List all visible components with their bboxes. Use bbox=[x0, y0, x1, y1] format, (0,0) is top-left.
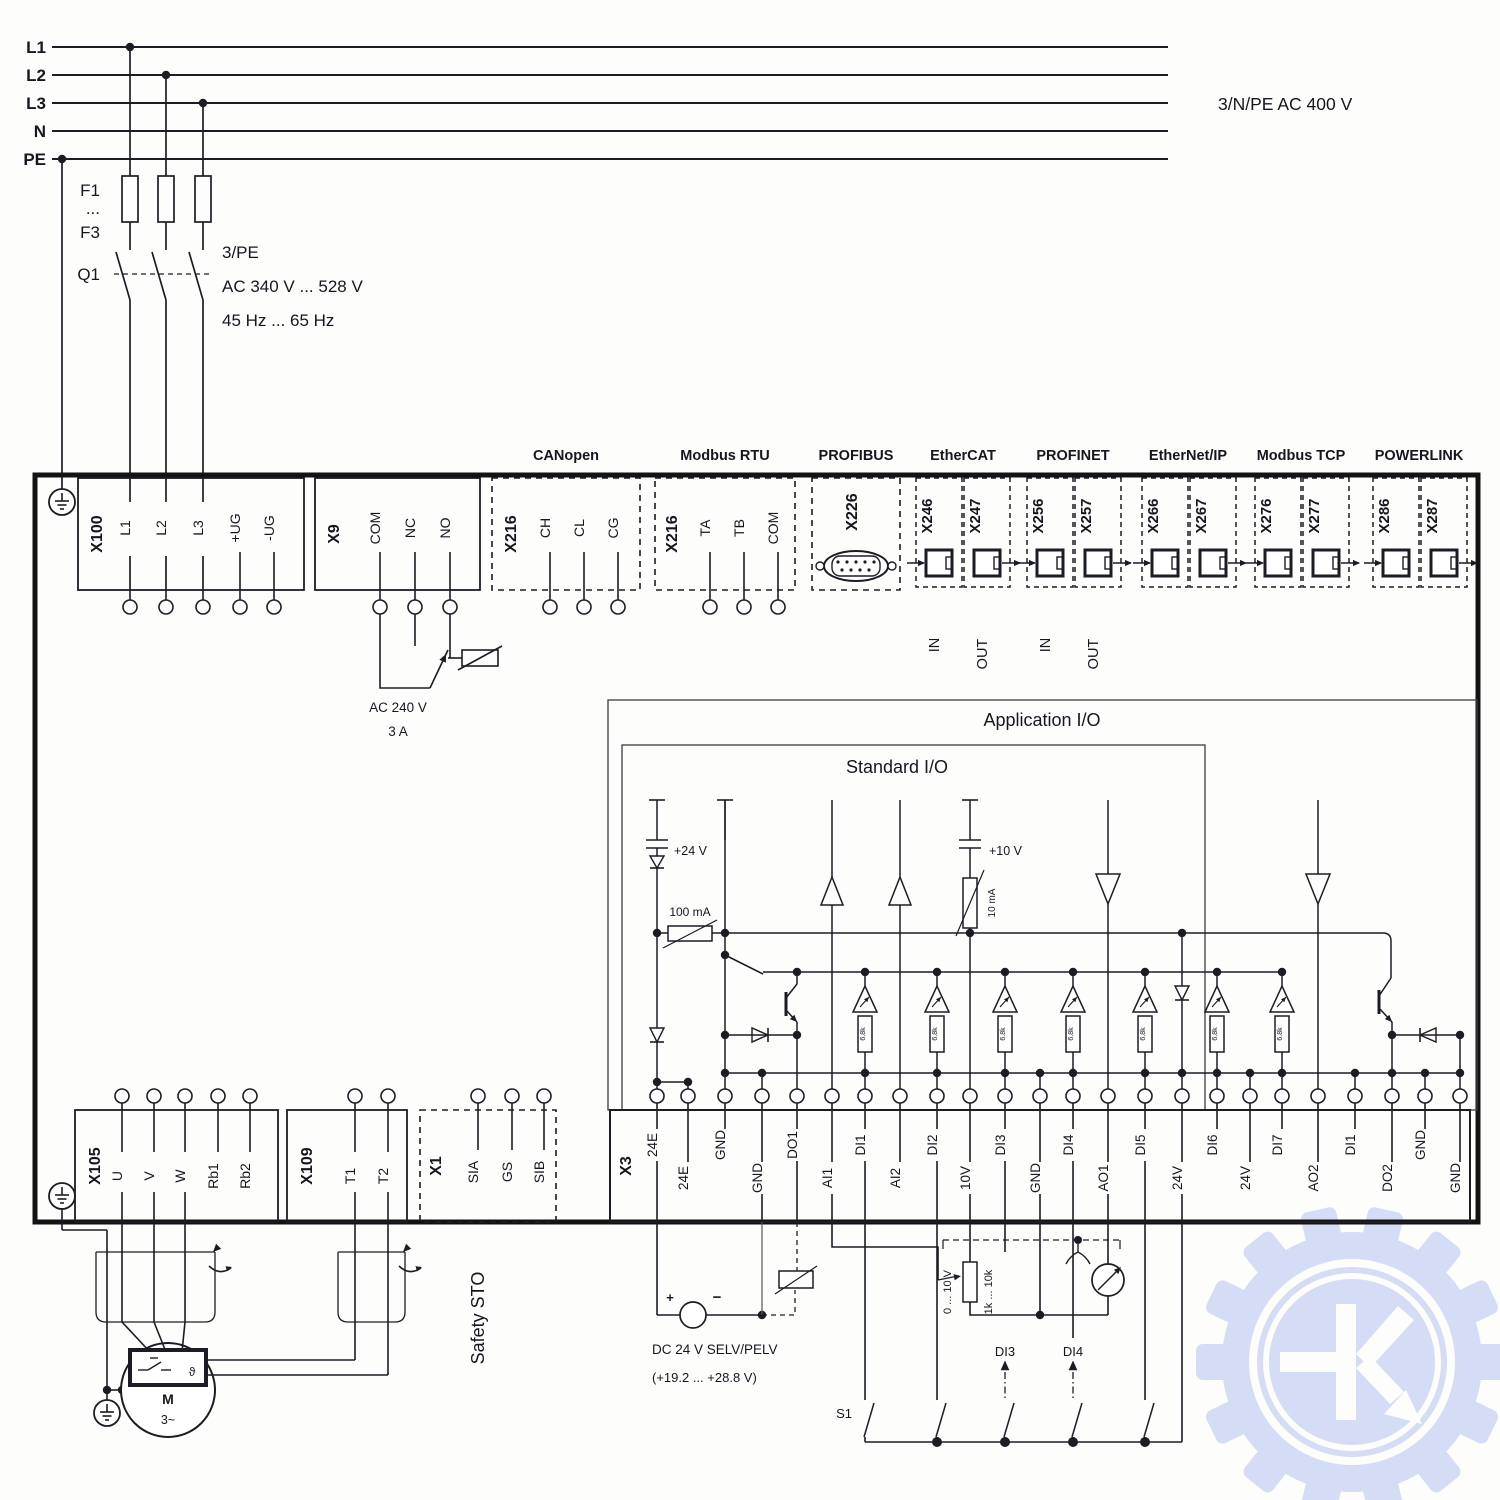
di-resistor-value-2: 6.8k bbox=[1000, 1027, 1007, 1041]
port-block-x247: X247OUT bbox=[964, 478, 1021, 669]
block-id-x3: X3 bbox=[618, 1156, 635, 1176]
mains-line-label-L2: L2 bbox=[26, 66, 46, 85]
motor-symbol: M bbox=[162, 1391, 174, 1407]
fieldbus-header-modbus-tcp: Modbus TCP bbox=[1257, 448, 1346, 464]
port-dir-x256: IN bbox=[1038, 638, 1054, 653]
x1-terminal-0: SIA bbox=[465, 1160, 481, 1183]
terminal-block-x9: X9COMNCNO bbox=[315, 478, 480, 614]
x100-terminal-1: L2 bbox=[153, 520, 169, 536]
port-block-x266: X266 bbox=[1133, 478, 1188, 587]
terminal-block-x216-modbus: X216TATBCOM bbox=[655, 478, 795, 614]
x3-terminal-9-10v: 10V bbox=[958, 1166, 973, 1190]
fieldbus-header-profinet: PROFINET bbox=[1036, 448, 1109, 464]
x3-terminal-7-ai2: AI2 bbox=[888, 1168, 903, 1188]
supply-rating-label: 3/N/PE AC 400 V bbox=[1218, 94, 1353, 114]
x3-terminal-12-di4: DI4 bbox=[1061, 1134, 1076, 1156]
x3-terminal-18-di7: DI7 bbox=[1270, 1134, 1285, 1155]
relay-output-circuit: AC 240 V3 A bbox=[369, 614, 502, 739]
wiring-diagram-page: L1L2L3NPE3/N/PE AC 400 VF1...F3Q13/PEAC … bbox=[0, 0, 1500, 1500]
fieldbus-header-profibus: PROFIBUS bbox=[819, 448, 894, 464]
motor-assembly: M3~ϑ bbox=[62, 1208, 423, 1437]
modbus-terminal-0: TA bbox=[697, 519, 713, 537]
fuse-label-f1: F1 bbox=[80, 181, 100, 200]
x3-terminal-11-gnd: GND bbox=[1028, 1163, 1043, 1193]
x3-terminal-1-24e: 24E bbox=[676, 1166, 691, 1190]
rj45-connector-icon bbox=[1383, 550, 1409, 576]
block-id-x276: X276 bbox=[1258, 498, 1275, 533]
x3-terminal-0-24e: 24E bbox=[645, 1133, 660, 1157]
block-id-x216-can: X216 bbox=[503, 515, 520, 552]
psu-minus-mark: − bbox=[713, 1289, 722, 1306]
block-id-x277: X277 bbox=[1306, 498, 1323, 533]
block-id-x109: X109 bbox=[299, 1147, 316, 1184]
breaker-note-1: AC 340 V ... 528 V bbox=[222, 277, 363, 296]
terminal-block-x1: X1SIAGSSIBSafety STO bbox=[420, 1089, 556, 1364]
label-100ma: 100 mA bbox=[669, 905, 710, 919]
breaker-label-q1: Q1 bbox=[77, 265, 100, 284]
psu-plus-mark: + bbox=[666, 1290, 674, 1305]
block-id-x267: X267 bbox=[1193, 498, 1210, 533]
fieldbus-header-ethercat: EtherCAT bbox=[930, 448, 996, 464]
psu-title: DC 24 V SELV/PELV bbox=[652, 1342, 778, 1357]
external-analog-circuit: 0 ... 10 V1k ... 10k bbox=[832, 1222, 1124, 1319]
di-resistor-value-3: 6.8k bbox=[1068, 1027, 1075, 1041]
block-id-x257: X257 bbox=[1078, 498, 1095, 533]
fuse-label-dots: ... bbox=[86, 199, 100, 218]
port-dir-x247: OUT bbox=[975, 639, 991, 670]
mains-line-label-PE: PE bbox=[23, 150, 46, 169]
x3-terminal-5-ai1: AI1 bbox=[820, 1168, 835, 1188]
can-terminal-0: CH bbox=[537, 518, 553, 538]
port-dir-x246: IN bbox=[927, 638, 943, 653]
block-id-x246: X246 bbox=[919, 498, 936, 533]
port-block-x276: X276 bbox=[1246, 478, 1301, 587]
x3-terminal-10-di3: DI3 bbox=[993, 1134, 1008, 1155]
breaker-note-2: 45 Hz ... 65 Hz bbox=[222, 311, 334, 330]
mains-line-label-N: N bbox=[34, 122, 46, 141]
x109-terminal-0: T1 bbox=[342, 1168, 358, 1185]
block-id-x100: X100 bbox=[89, 515, 106, 552]
port-block-x257: X257OUT bbox=[1075, 478, 1132, 669]
rj45-connector-icon bbox=[1265, 550, 1291, 576]
terminal-block-x216-canopen: X216CHCLCG bbox=[492, 478, 640, 614]
x3-terminal-19-ao2: AO2 bbox=[1306, 1164, 1321, 1191]
x100-terminal-2: L3 bbox=[190, 520, 206, 536]
x3-terminal-22-gnd: GND bbox=[1413, 1130, 1428, 1160]
x9-terminal-0: COM bbox=[367, 512, 383, 545]
block-id-x266: X266 bbox=[1145, 498, 1162, 533]
x105-terminal-2: W bbox=[172, 1169, 188, 1183]
port-block-x277: X277 bbox=[1303, 478, 1360, 587]
terminal-block-x105: X105UVWRb1Rb2 bbox=[75, 1089, 278, 1222]
x3-terminal-20-di1: DI1 bbox=[1343, 1134, 1358, 1155]
rj45-connector-icon bbox=[1431, 550, 1457, 576]
modbus-terminal-2: COM bbox=[765, 512, 781, 545]
x3-terminal-13-ao1: AO1 bbox=[1096, 1164, 1111, 1191]
di-resistor-value-1: 6.8k bbox=[932, 1027, 939, 1041]
x3-terminal-6-di1: DI1 bbox=[853, 1134, 868, 1155]
x3-terminal-15-24v: 24V bbox=[1170, 1166, 1185, 1190]
port-block-x246: X246IN bbox=[907, 478, 962, 652]
x1-terminal-2: SIB bbox=[531, 1161, 547, 1184]
modbus-terminal-1: TB bbox=[731, 519, 747, 537]
rj45-connector-icon bbox=[1313, 550, 1339, 576]
port-dir-x257: OUT bbox=[1086, 639, 1102, 670]
label-10ma: 10 mA bbox=[987, 888, 998, 917]
ref-label-di3: DI3 bbox=[995, 1344, 1015, 1359]
switch-label-s1: S1 bbox=[836, 1406, 852, 1421]
x3-terminal-3-gnd: GND bbox=[750, 1163, 765, 1193]
fieldbus-header-row: CANopenModbus RTUPROFIBUSEtherCATPROFINE… bbox=[533, 448, 1464, 464]
breaker-note-0: 3/PE bbox=[222, 243, 259, 262]
fieldbus-header-modbus-rtu: Modbus RTU bbox=[680, 448, 769, 464]
x105-terminal-0: U bbox=[109, 1171, 125, 1181]
ref-label-di4: DI4 bbox=[1063, 1344, 1083, 1359]
fuse-label-f3: F3 bbox=[80, 223, 100, 242]
x3-terminal-8-di2: DI2 bbox=[925, 1134, 940, 1155]
fieldbus-header-powerlink: POWERLINK bbox=[1375, 448, 1464, 464]
terminal-block-x226-profibus: X226 bbox=[812, 478, 900, 590]
x3-terminal-4-do1: DO1 bbox=[785, 1131, 800, 1159]
terminal-block-x3: X324E24EGNDGNDDO1AI1DI1AI2DI210VDI3GNDDI… bbox=[610, 1089, 1470, 1222]
relay-rating-voltage: AC 240 V bbox=[369, 700, 427, 715]
rj45-connector-icon bbox=[1200, 550, 1226, 576]
x100-terminal-4: -UG bbox=[261, 515, 277, 541]
block-id-x9: X9 bbox=[326, 524, 343, 544]
motor-phases: 3~ bbox=[161, 1413, 175, 1427]
mains-line-label-L3: L3 bbox=[26, 94, 46, 113]
di-resistor-value-4: 6.8k bbox=[1140, 1027, 1147, 1041]
x9-terminal-1: NC bbox=[402, 518, 418, 538]
pot-resistance-label: 1k ... 10k bbox=[983, 1269, 995, 1314]
can-terminal-1: CL bbox=[571, 519, 587, 537]
io-frames: Application I/OStandard I/O bbox=[608, 700, 1477, 1110]
dsub9-connector-icon bbox=[816, 551, 896, 581]
block-id-x216-mb: X216 bbox=[664, 515, 681, 552]
safety-sto-label: Safety STO bbox=[468, 1272, 488, 1365]
rj45-connector-icon bbox=[1037, 550, 1063, 576]
x105-terminal-3: Rb1 bbox=[205, 1163, 221, 1189]
standard-io-circuit: +24 V+10 V10 mA100 mA6.8k6.8k6.8k6.8k6.8… bbox=[646, 800, 1464, 1089]
block-id-x247: X247 bbox=[967, 498, 984, 533]
port-block-x287: X287 bbox=[1421, 478, 1478, 587]
rj45-connector-icon bbox=[1152, 550, 1178, 576]
pot-range-label: 0 ... 10 V bbox=[942, 1269, 954, 1314]
ethernet-port-blocks: X246INX247OUTX256INX257OUTX266X267X276X2… bbox=[907, 478, 1478, 669]
motor-thermal-contact-label: ϑ bbox=[189, 1365, 196, 1379]
di-resistor-value-5: 6.8k bbox=[1212, 1027, 1219, 1041]
standard-io-title: Standard I/O bbox=[846, 757, 948, 777]
can-terminal-2: CG bbox=[605, 518, 621, 539]
block-id-x226: X226 bbox=[844, 493, 861, 530]
x105-terminal-1: V bbox=[141, 1171, 157, 1181]
di-resistor-value-0: 6.8k bbox=[860, 1027, 867, 1041]
di-resistor-value-6: 6.8k bbox=[1277, 1027, 1284, 1041]
x9-terminal-2: NO bbox=[437, 517, 453, 538]
mains-line-label-L1: L1 bbox=[26, 38, 46, 57]
x1-terminal-1: GS bbox=[499, 1162, 515, 1182]
x105-terminal-4: Rb2 bbox=[237, 1163, 253, 1189]
fieldbus-header-canopen: CANopen bbox=[533, 448, 599, 464]
label-plus24v: +24 V bbox=[674, 844, 708, 858]
terminal-block-x109: X109T1T2 bbox=[287, 1089, 407, 1222]
block-id-x105: X105 bbox=[87, 1147, 104, 1184]
x3-terminal-2-gnd: GND bbox=[713, 1130, 728, 1160]
label-plus10v: +10 V bbox=[989, 844, 1023, 858]
application-io-title: Application I/O bbox=[983, 710, 1100, 730]
x100-terminal-0: L1 bbox=[117, 520, 133, 536]
x3-terminal-21-do2: DO2 bbox=[1380, 1164, 1395, 1192]
rj45-connector-icon bbox=[1085, 550, 1111, 576]
relay-rating-current: 3 A bbox=[388, 724, 408, 739]
x3-terminal-14-di5: DI5 bbox=[1133, 1134, 1148, 1155]
rj45-connector-icon bbox=[974, 550, 1000, 576]
psu-range: (+19.2 ... +28.8 V) bbox=[652, 1370, 757, 1385]
external-dc-supply: +−DC 24 V SELV/PELV(+19.2 ... +28.8 V) bbox=[652, 1222, 817, 1385]
block-id-x1: X1 bbox=[428, 1156, 445, 1176]
port-block-x267: X267 bbox=[1190, 478, 1247, 587]
external-switch-circuit: DI3DI4S1 bbox=[836, 1222, 1182, 1447]
x3-terminal-17-24v: 24V bbox=[1238, 1166, 1253, 1190]
block-id-x286: X286 bbox=[1376, 498, 1393, 533]
x3-terminal-16-di6: DI6 bbox=[1205, 1134, 1220, 1155]
terminal-block-x100: X100L1L2L3+UG-UG bbox=[78, 478, 304, 614]
x100-terminal-3: +UG bbox=[227, 513, 243, 542]
pe-earth-symbols bbox=[49, 489, 75, 1209]
port-block-x256: X256IN bbox=[1018, 478, 1073, 652]
block-id-x256: X256 bbox=[1030, 498, 1047, 533]
rj45-connector-icon bbox=[926, 550, 952, 576]
x3-terminal-23-gnd: GND bbox=[1448, 1163, 1463, 1193]
block-id-x287: X287 bbox=[1424, 498, 1441, 533]
inverter-wiring-diagram: L1L2L3NPE3/N/PE AC 400 VF1...F3Q13/PEAC … bbox=[0, 0, 1500, 1500]
watermark-gear-logo bbox=[1196, 1206, 1500, 1500]
x109-terminal-1: T2 bbox=[375, 1168, 391, 1185]
fieldbus-header-ethernet-ip: EtherNet/IP bbox=[1149, 448, 1227, 464]
port-block-x286: X286 bbox=[1364, 478, 1419, 587]
